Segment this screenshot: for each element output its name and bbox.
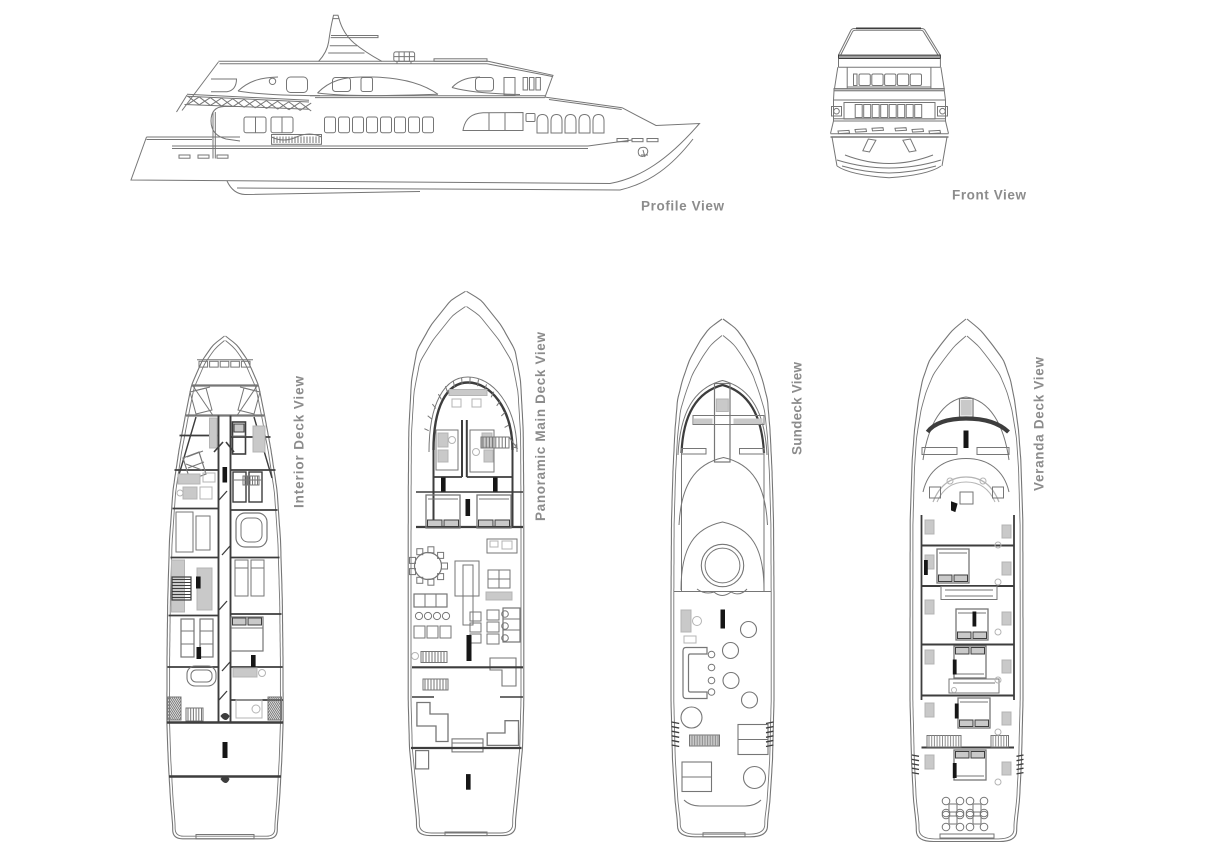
svg-text:Panoramic Main Deck View: Panoramic Main Deck View (533, 332, 548, 521)
svg-text:Interior Deck View: Interior Deck View (292, 376, 307, 508)
svg-text:Profile View: Profile View (641, 199, 724, 214)
svg-text:Front View: Front View (952, 188, 1026, 203)
svg-text:Veranda Deck View: Veranda Deck View (1032, 357, 1047, 491)
svg-text:Sundeck View: Sundeck View (790, 362, 805, 455)
